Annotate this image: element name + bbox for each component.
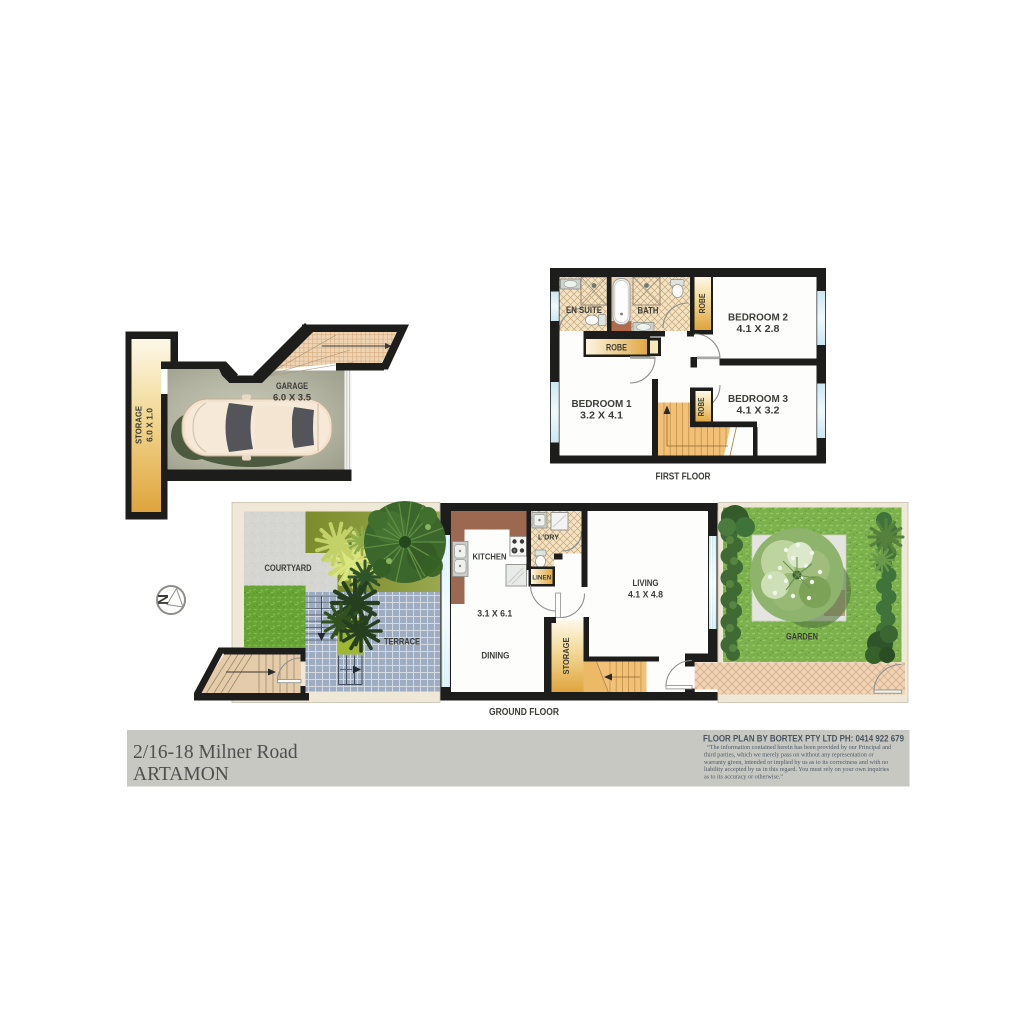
svg-text:KITCHEN: KITCHEN [473,552,507,562]
svg-text:BEDROOM 2: BEDROOM 2 [728,313,788,324]
svg-text:4.1 X 3.2: 4.1 X 3.2 [737,406,780,417]
svg-text:BEDROOM 1: BEDROOM 1 [572,399,632,410]
svg-text:GARAGE: GARAGE [276,381,308,391]
svg-text:4.1 X 2.8: 4.1 X 2.8 [737,324,780,335]
svg-text:N: N [155,594,172,605]
svg-text:GARDEN: GARDEN [786,632,818,643]
svg-text:as to its accuracy or otherwis: as to its accuracy or otherwise.” [704,774,783,781]
svg-text:“The information contained her: “The information contained herein has be… [707,744,892,751]
svg-text:6.0 X 3.5: 6.0 X 3.5 [273,393,311,403]
svg-text:TERRACE: TERRACE [384,637,420,648]
svg-text:BATH: BATH [638,306,659,316]
svg-text:2/16-18 Milner Road: 2/16-18 Milner Road [133,742,298,763]
svg-text:ROBE: ROBE [697,293,707,313]
svg-text:LIVING: LIVING [633,578,659,589]
svg-text:STORAGE: STORAGE [561,637,571,674]
svg-text:warranty given, intended or im: warranty given, intended or implied by u… [704,759,888,766]
svg-text:EN SUITE: EN SUITE [566,305,602,315]
svg-text:STORAGE: STORAGE [135,405,144,444]
svg-text:4.1 X 4.8: 4.1 X 4.8 [628,590,663,601]
svg-text:L'DRY: L'DRY [538,535,559,542]
svg-text:FIRST FLOOR: FIRST FLOOR [656,472,712,483]
svg-text:6.0 X 1.0: 6.0 X 1.0 [146,407,155,442]
svg-text:3.2 X 4.1: 3.2 X 4.1 [580,411,623,422]
svg-text:BEDROOM 3: BEDROOM 3 [728,394,788,405]
svg-text:ROBE: ROBE [697,397,706,417]
svg-text:liability accepted by us in th: liability accepted by us in this regard.… [704,766,890,773]
svg-text:3.1 X 6.1: 3.1 X 6.1 [477,609,513,620]
svg-text:ROBE: ROBE [606,343,627,353]
svg-text:GROUND FLOOR: GROUND FLOOR [489,707,560,718]
svg-text:DINING: DINING [481,651,509,662]
svg-text:third parties, which we merely: third parties, which we merely pass on w… [704,751,874,758]
svg-text:FLOOR PLAN BY BORTEX PTY LTD P: FLOOR PLAN BY BORTEX PTY LTD PH: 0414 92… [703,734,904,744]
svg-text:LINEN: LINEN [532,575,551,582]
svg-text:ARTAMON: ARTAMON [133,764,229,785]
svg-text:COURTYARD: COURTYARD [265,563,312,574]
